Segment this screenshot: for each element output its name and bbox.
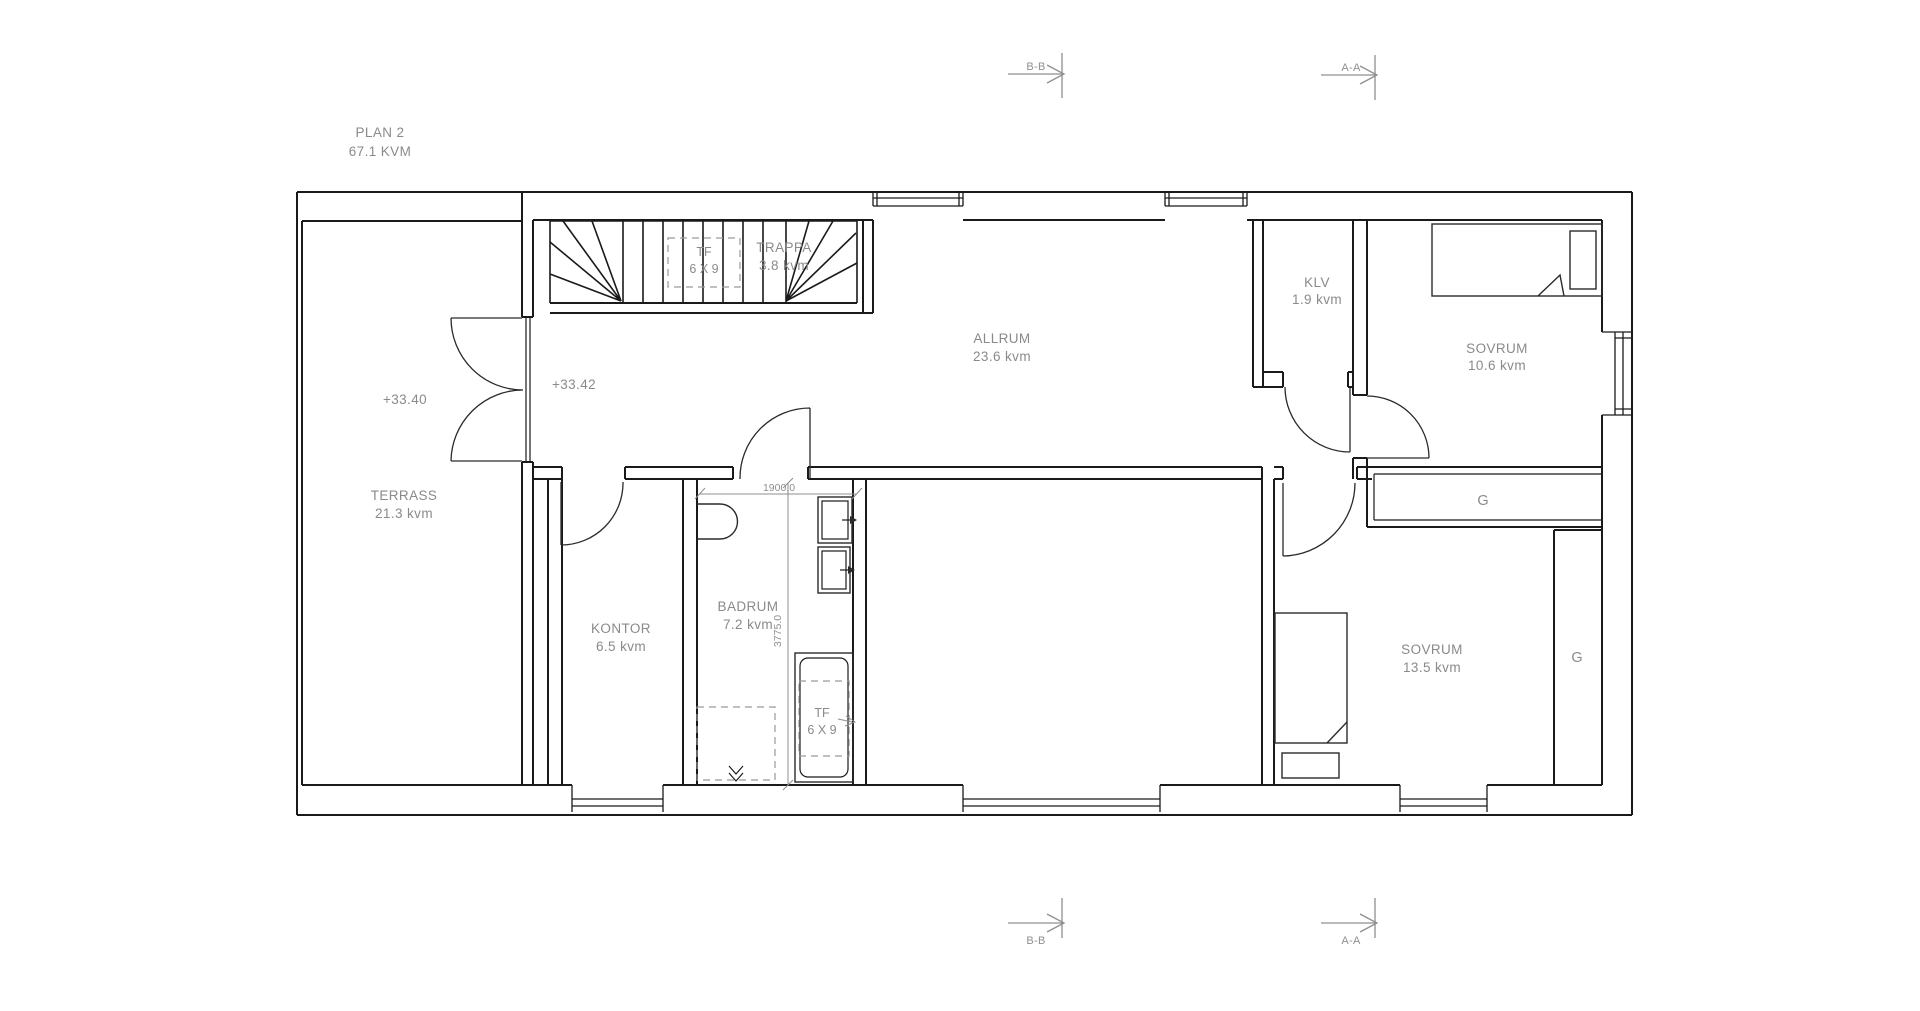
door-sovrum-bottom: [1283, 483, 1355, 556]
elevation-allrum-label: +33.42: [552, 377, 596, 392]
room-area: 23.6 kvm: [973, 349, 1031, 364]
wardrobe-top-label: G: [1477, 493, 1488, 509]
washer-icon-1: [818, 497, 857, 543]
room-trappa-label: TRAPPA 3.8 kvm: [756, 240, 811, 273]
room-area: 7.2 kvm: [723, 617, 773, 632]
window-bottom-middle-room: [963, 785, 1160, 812]
skylight-stairs-label2: 6 X 9: [689, 262, 718, 276]
floor-plan-canvas: PLAN 2 67.1 KVM B-B A-A B-B A-A: [0, 0, 1920, 1011]
windows: [572, 192, 1632, 812]
dimension-height-label: 3775.0: [772, 615, 784, 647]
plan-title-area: 67.1 KVM: [349, 144, 411, 159]
doors: [451, 318, 1429, 556]
skylight-bathroom-label2: 6 X 9: [807, 723, 836, 737]
room-sovrum-bottom-label: SOVRUM 13.5 kvm: [1401, 642, 1463, 675]
room-terrass-label: TERRASS 21.3 kvm: [371, 488, 438, 521]
door-badrum: [740, 408, 810, 479]
room-area: 1.9 kvm: [1292, 292, 1342, 307]
room-name: BADRUM: [718, 599, 779, 614]
floor-drain-icon: [729, 766, 743, 781]
door-klv: [1285, 387, 1350, 452]
room-area: 3.8 kvm: [759, 258, 809, 273]
room-allrum-label: ALLRUM 23.6 kvm: [973, 331, 1031, 364]
room-name: TERRASS: [371, 488, 438, 503]
door-kontor: [561, 482, 623, 545]
section-marker-aa-top: A-A: [1321, 55, 1377, 100]
room-name: ALLRUM: [973, 331, 1030, 346]
dimension-width-label: 1900.0: [763, 482, 795, 494]
shower-area: [697, 707, 775, 781]
window-bottom-kontor: [572, 785, 663, 812]
room-name: SOVRUM: [1466, 341, 1528, 356]
bedside-table-icon: [1282, 753, 1339, 778]
interior-walls: [533, 220, 1372, 785]
room-area: 6.5 kvm: [596, 639, 646, 654]
door-sovrum-top: [1367, 396, 1429, 458]
section-marker-bb-top: B-B: [1008, 53, 1064, 98]
room-kontor-label: KONTOR 6.5 kvm: [591, 621, 651, 654]
window-top-klv: [1165, 192, 1247, 206]
room-area: 21.3 kvm: [375, 506, 433, 521]
bed-icon-sovrum-bottom: [1275, 613, 1347, 778]
section-marker-bb-bottom: B-B: [1008, 898, 1064, 947]
bed-icon-sovrum-top: [1432, 224, 1602, 296]
room-name: KLV: [1304, 275, 1330, 290]
room-name: SOVRUM: [1401, 642, 1463, 657]
window-top-allrum: [873, 192, 963, 206]
section-marker-bb-bottom-label: B-B: [1026, 935, 1045, 947]
room-name: KONTOR: [591, 621, 651, 636]
room-badrum-label: BADRUM 7.2 kvm: [718, 599, 779, 632]
wardrobe-band-right: G: [1554, 530, 1603, 785]
window-bottom-sovrum: [1400, 785, 1487, 812]
room-klv-label: KLV 1.9 kvm: [1292, 275, 1342, 307]
washer-icon-2: [818, 547, 855, 593]
plan-title: PLAN 2 67.1 KVM: [349, 125, 411, 159]
sink-icon: [697, 504, 738, 539]
room-name: TRAPPA: [756, 240, 811, 255]
dimension-annotations: 1900.0 3775.0: [695, 478, 862, 790]
section-marker-aa-bottom-label: A-A: [1341, 935, 1361, 947]
furniture: [697, 224, 1602, 782]
wardrobe-band-top: G: [1367, 467, 1603, 527]
room-area: 13.5 kvm: [1403, 660, 1461, 675]
room-sovrum-top-label: SOVRUM 10.6 kvm: [1466, 341, 1528, 373]
section-marker-bb-top-label: B-B: [1026, 61, 1045, 73]
section-marker-aa-top-label: A-A: [1341, 62, 1361, 74]
plan-title-name: PLAN 2: [356, 125, 405, 140]
wardrobe-right-label: G: [1571, 650, 1582, 666]
room-area: 10.6 kvm: [1468, 358, 1526, 373]
door-terrass-double: [451, 318, 530, 461]
window-right-sovrum-top: [1602, 332, 1632, 415]
elevation-terrass-label: +33.40: [383, 392, 427, 407]
skylight-bathroom-label1: TF: [814, 706, 830, 720]
staircase: TF 6 X 9: [550, 221, 857, 303]
skylight-stairs-label1: TF: [696, 245, 712, 259]
section-marker-aa-bottom: A-A: [1321, 898, 1377, 947]
